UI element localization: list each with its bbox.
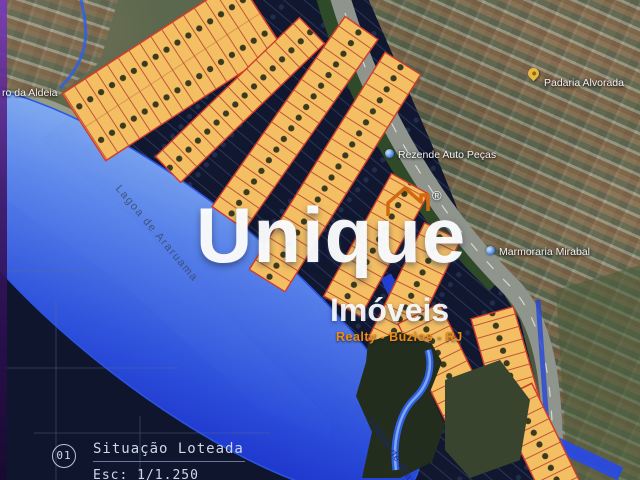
poi-autoparts-label: Rezende Auto Peças bbox=[398, 150, 496, 162]
shore-street-line bbox=[60, 0, 86, 88]
poi-marble-label: Marmoraria Mirabal bbox=[499, 247, 590, 259]
watermark-tagline: Realty - Búzios - RJ bbox=[336, 330, 463, 344]
town-label: ro da Aldeia bbox=[2, 88, 57, 100]
registered-mark-icon: ® bbox=[432, 188, 442, 203]
watermark-type: Imóveis bbox=[330, 292, 449, 329]
legend-underline bbox=[93, 461, 245, 462]
legend-title: Situação Loteada bbox=[93, 441, 244, 457]
legend-scale: Esc: 1/1.250 bbox=[93, 468, 199, 480]
poi-dot-icon bbox=[385, 149, 394, 158]
poi-bakery-label: Padaria Alvorada bbox=[544, 78, 624, 90]
left-edge-artifact bbox=[0, 0, 7, 480]
watermark-brand: Unique bbox=[196, 190, 466, 281]
poi-dot-icon bbox=[486, 246, 495, 255]
listing-map-image: ro da Aldeia Padaria Alvorada Rezende Au… bbox=[0, 0, 640, 480]
legend-number-badge: 01 bbox=[52, 444, 76, 468]
